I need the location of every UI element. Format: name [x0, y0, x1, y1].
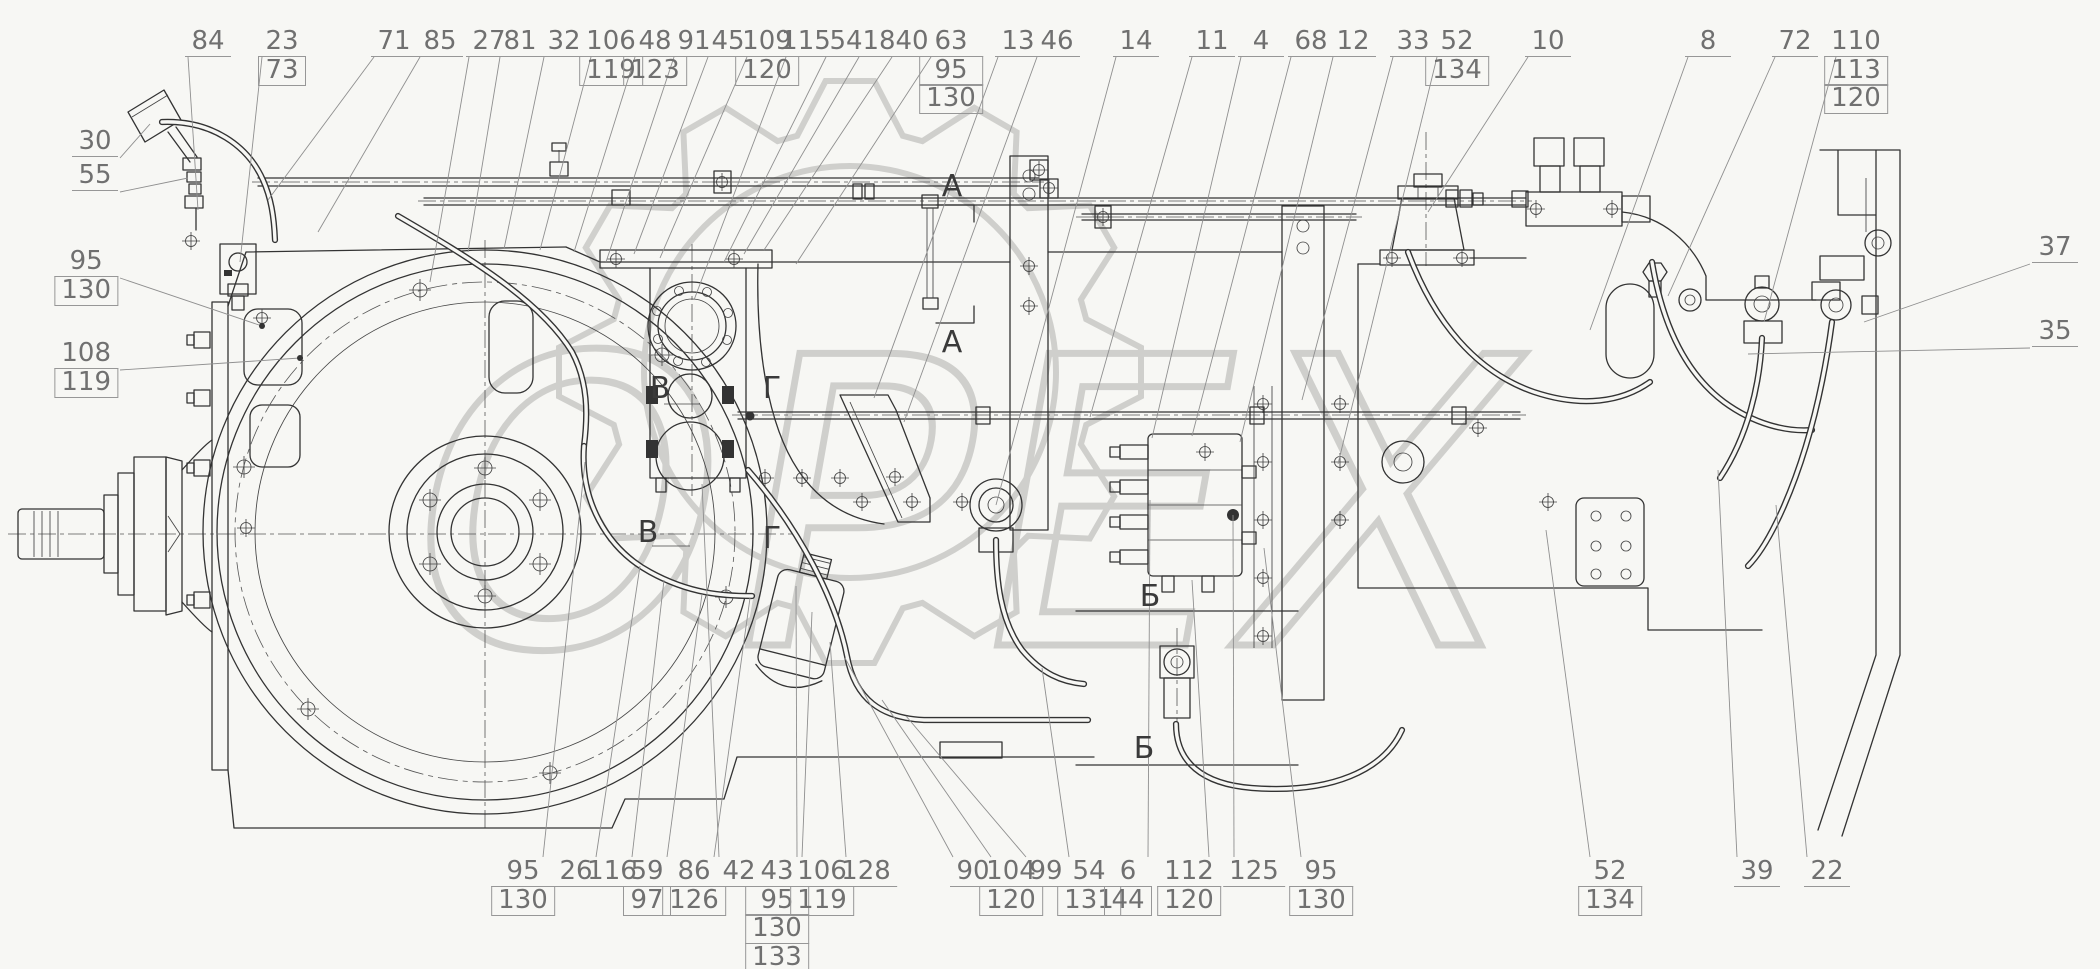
callout-number: 95	[54, 248, 118, 277]
callout-84: 84	[185, 28, 231, 57]
callout-number: 52	[1578, 858, 1642, 887]
callout-number: 119	[790, 886, 854, 916]
callout-6-44: 644	[1104, 858, 1152, 916]
callout-number: 8	[1685, 28, 1731, 57]
callout-number: 95	[919, 56, 983, 86]
callout-number: 85	[417, 28, 463, 57]
callout-112-120: 112120	[1157, 858, 1221, 916]
callout-23-73: 2373	[258, 28, 306, 86]
callout-number: 120	[979, 886, 1043, 916]
callout-number: 134	[1425, 56, 1489, 86]
callout-number: 108	[54, 340, 118, 369]
callout-11: 11	[1189, 28, 1235, 57]
callout-30: 30	[72, 128, 118, 157]
callout-95-130: 95130	[1289, 858, 1353, 916]
callout-35: 35	[2032, 318, 2078, 347]
callout-39: 39	[1734, 858, 1780, 887]
callout-number: 35	[2032, 318, 2078, 347]
callout-number: 6	[1104, 858, 1152, 887]
callout-8: 8	[1685, 28, 1731, 57]
callout-number: 120	[735, 56, 799, 86]
callout-number: 63	[919, 28, 983, 57]
callout-number: 130	[1289, 886, 1353, 916]
callout-number: 125	[1223, 858, 1285, 887]
callout-number: 133	[745, 943, 809, 969]
callout-number: 119	[54, 368, 118, 398]
callout-number: 52	[1425, 28, 1489, 57]
callout-number: 130	[54, 276, 118, 306]
callout-number: 23	[258, 28, 306, 57]
callout-128: 128	[835, 858, 897, 887]
callout-125: 125	[1223, 858, 1285, 887]
callout-number: 14	[1113, 28, 1159, 57]
callout-72: 72	[1772, 28, 1818, 57]
callout-number: 95	[491, 858, 555, 887]
callout-number: 4	[1238, 28, 1284, 57]
callout-68: 68	[1288, 28, 1334, 57]
callout-number: 71	[371, 28, 417, 57]
callout-46: 46	[1034, 28, 1080, 57]
callout-55: 55	[72, 162, 118, 191]
callout-52-134: 52134	[1578, 858, 1642, 916]
callout-108-119: 108119	[54, 340, 118, 398]
callout-number: 84	[185, 28, 231, 57]
callout-number: 81	[497, 28, 543, 57]
callout-number: 130	[745, 914, 809, 944]
callout-81: 81	[497, 28, 543, 57]
callout-number: 95	[1289, 858, 1353, 887]
callout-number: 37	[2032, 234, 2078, 263]
callout-110-113-120: 110113120	[1824, 28, 1888, 114]
callout-number: 44	[1104, 886, 1152, 916]
callout-number: 22	[1804, 858, 1850, 887]
callout-number: 68	[1288, 28, 1334, 57]
callout-63-95-130: 6395130	[919, 28, 983, 114]
callout-number: 113	[1824, 56, 1888, 86]
callout-10: 10	[1525, 28, 1571, 57]
callout-number: 72	[1772, 28, 1818, 57]
callout-95-130: 95130	[491, 858, 555, 916]
callout-number: 128	[835, 858, 897, 887]
callout-number: 12	[1330, 28, 1376, 57]
engineering-drawing-page: OPEX	[0, 0, 2100, 969]
callout-number: 130	[491, 886, 555, 916]
callout-number: 112	[1157, 858, 1221, 887]
callout-4: 4	[1238, 28, 1284, 57]
callout-number: 46	[1034, 28, 1080, 57]
callout-14: 14	[1113, 28, 1159, 57]
callout-71: 71	[371, 28, 417, 57]
callout-number: 134	[1578, 886, 1642, 916]
callout-number: 11	[1189, 28, 1235, 57]
callout-22: 22	[1804, 858, 1850, 887]
callout-number: 120	[1824, 84, 1888, 114]
callout-number: 55	[72, 162, 118, 191]
callout-52-134: 52134	[1425, 28, 1489, 86]
callout-number: 73	[258, 56, 306, 86]
callout-number: 120	[1157, 886, 1221, 916]
callout-number: 123	[623, 56, 687, 86]
callout-number: 126	[662, 886, 726, 916]
callout-layer: 8423737185278132106119481239145109120115…	[0, 0, 2100, 969]
callout-85: 85	[417, 28, 463, 57]
callout-number: 110	[1824, 28, 1888, 57]
callout-number: 39	[1734, 858, 1780, 887]
callout-number: 10	[1525, 28, 1571, 57]
callout-12: 12	[1330, 28, 1376, 57]
callout-95-130: 95130	[54, 248, 118, 306]
callout-number: 30	[72, 128, 118, 157]
callout-number: 130	[919, 84, 983, 114]
callout-37: 37	[2032, 234, 2078, 263]
